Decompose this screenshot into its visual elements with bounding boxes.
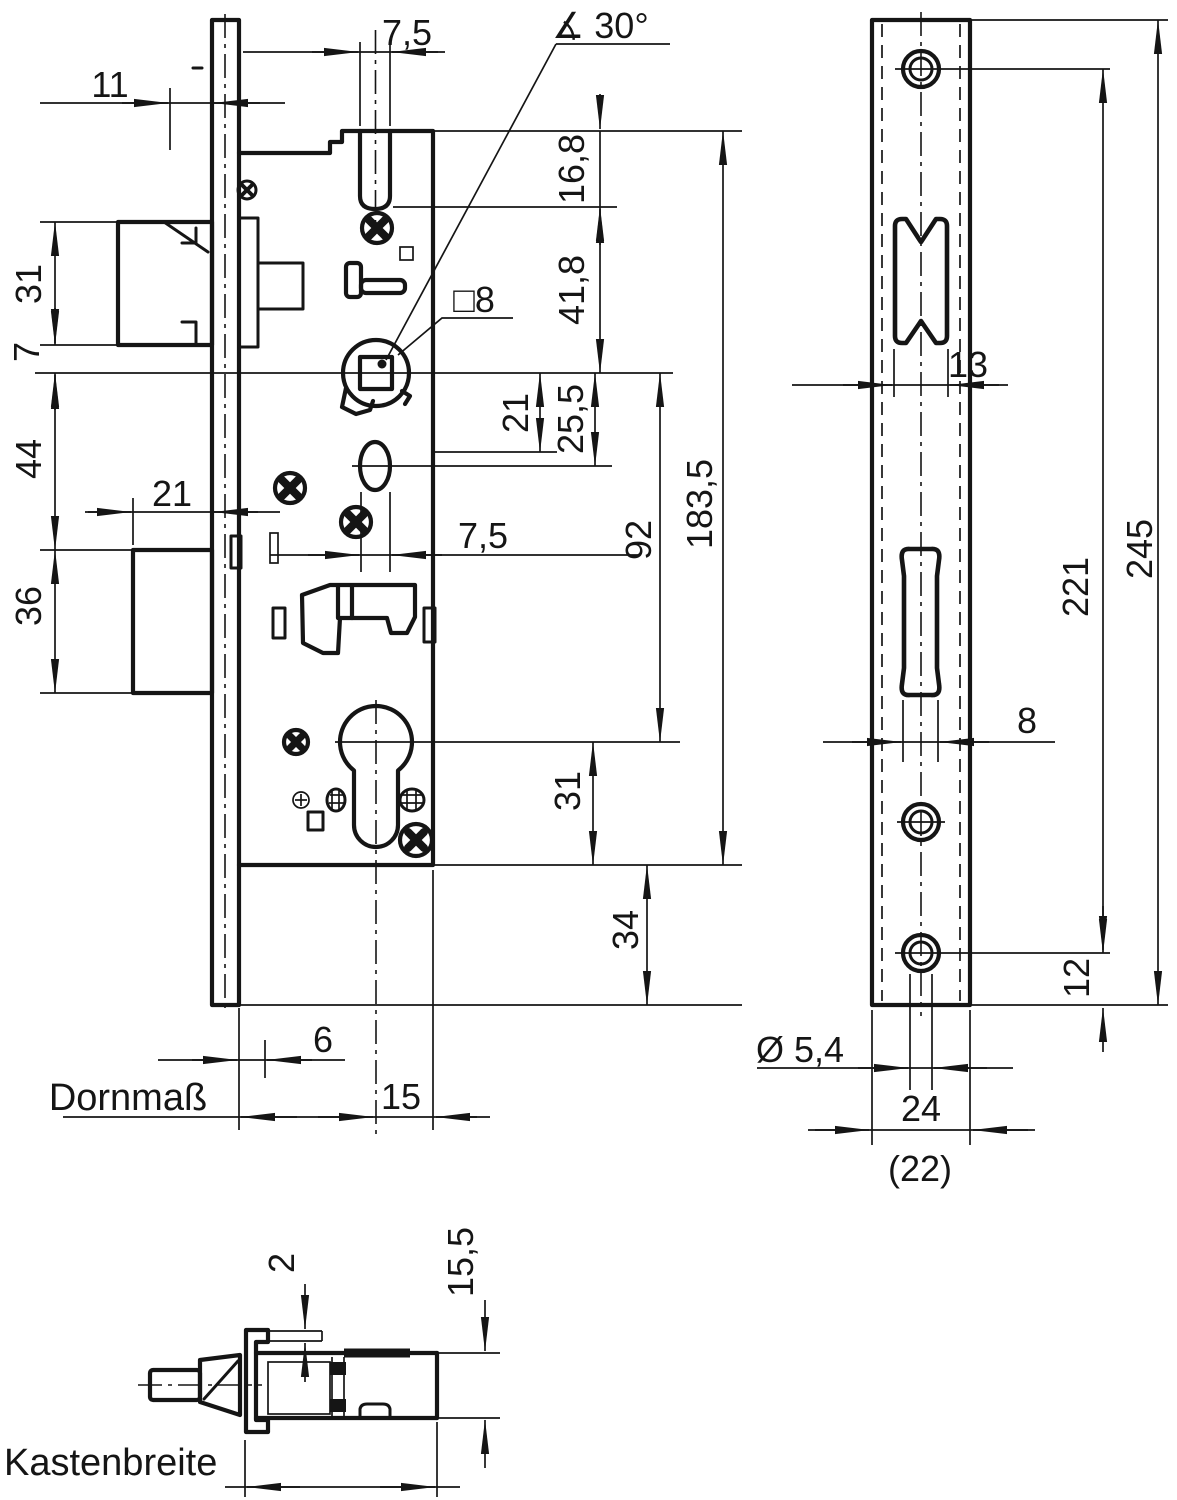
dim-255-label: 25,5: [550, 384, 591, 454]
dim-92-label: 92: [618, 520, 659, 560]
dim-12-label: 12: [1056, 958, 1097, 998]
dim-21-throw-label: 21: [152, 473, 192, 514]
square-8-label: □8: [453, 279, 495, 320]
dia-54-label: Ø 5,4: [756, 1029, 844, 1070]
dim-22-label: (22): [888, 1148, 952, 1189]
drawing-background: [0, 0, 1177, 1500]
dim-31-cyl-label: 31: [547, 771, 588, 811]
dim-13-label: 13: [948, 344, 988, 385]
dim-221-label: 221: [1055, 557, 1096, 617]
dim-2-label: 2: [261, 1253, 302, 1273]
dim-1835-label: 183,5: [679, 459, 720, 549]
dim-11-label: 11: [91, 64, 128, 105]
dim-44-label: 44: [8, 439, 49, 479]
dim-21-mid-label: 21: [495, 393, 536, 433]
dim-6-label: 6: [313, 1019, 333, 1060]
dim-7-label: 7: [6, 342, 47, 362]
dim-155-label: 15,5: [440, 1227, 481, 1297]
dim-36-label: 36: [8, 586, 49, 626]
dim-34-label: 34: [605, 910, 646, 950]
dim-75-mid-label: 7,5: [458, 515, 508, 556]
kastenbreite-label: Kastenbreite: [4, 1442, 217, 1484]
lock-technical-drawing: 11 31 7 44 36 21 7,5 ∡ 30° □8: [0, 0, 1177, 1500]
dim-15-label: 15: [381, 1076, 421, 1117]
dornmass-label: Dornmaß: [49, 1077, 207, 1119]
dim-418-label: 41,8: [551, 255, 592, 325]
dim-75-top-label: 7,5: [382, 12, 432, 53]
dim-8-label: 8: [1017, 700, 1037, 741]
technical-drawing-page: 11 31 7 44 36 21 7,5 ∡ 30° □8: [0, 0, 1177, 1500]
dim-245-label: 245: [1119, 519, 1160, 579]
dim-168-label: 16,8: [551, 134, 592, 204]
dim-31-latch-label: 31: [8, 264, 49, 304]
dim-24-label: 24: [901, 1088, 941, 1129]
angle-30-label: ∡ 30°: [552, 5, 649, 46]
